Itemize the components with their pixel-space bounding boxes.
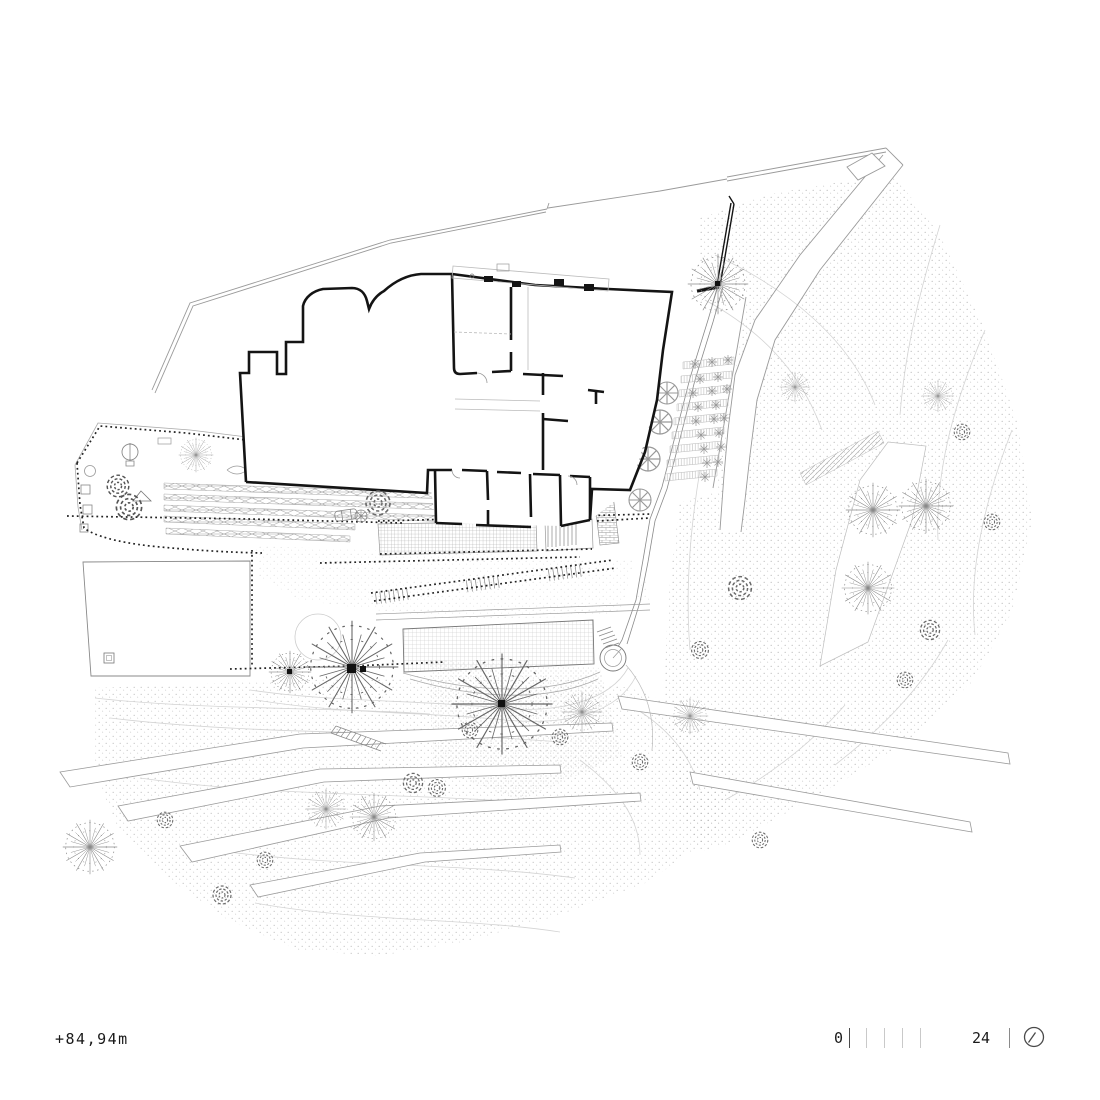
chimney: [584, 284, 594, 291]
site-plan-drawing: [0, 0, 1100, 1100]
courtyard: [75, 423, 247, 532]
chimney: [512, 281, 521, 287]
pool: [403, 620, 594, 672]
elevation-label: +84,94m: [55, 1030, 129, 1048]
lawn: [83, 561, 250, 676]
chimney: [484, 276, 493, 282]
chimney: [554, 279, 564, 286]
site-plan-page: +84,94m 0 24: [0, 0, 1100, 1100]
building-footprint: [240, 264, 672, 527]
